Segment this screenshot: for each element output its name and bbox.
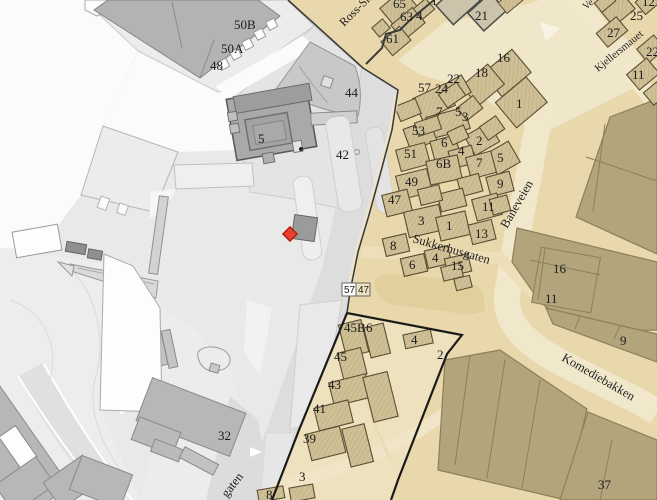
svg-text:2: 2 xyxy=(476,133,483,148)
svg-text:22: 22 xyxy=(646,44,657,59)
svg-text:5: 5 xyxy=(497,150,504,165)
svg-text:61: 61 xyxy=(386,31,399,46)
svg-text:57: 57 xyxy=(418,80,432,95)
svg-text:1: 1 xyxy=(446,218,453,233)
svg-text:45B: 45B xyxy=(344,320,366,335)
svg-text:3: 3 xyxy=(299,469,306,484)
svg-text:9: 9 xyxy=(497,176,504,191)
svg-text:11: 11 xyxy=(482,199,495,214)
svg-text:44: 44 xyxy=(345,85,359,100)
svg-text:4: 4 xyxy=(458,143,465,158)
svg-text:15: 15 xyxy=(451,258,464,273)
svg-text:43: 43 xyxy=(328,377,341,392)
svg-text:22: 22 xyxy=(447,71,460,86)
svg-text:47: 47 xyxy=(358,285,370,296)
svg-text:48: 48 xyxy=(210,58,223,73)
svg-text:16: 16 xyxy=(497,50,511,65)
svg-text:5: 5 xyxy=(258,131,265,146)
svg-text:6: 6 xyxy=(441,135,448,150)
svg-text:12: 12 xyxy=(642,0,655,9)
svg-text:18: 18 xyxy=(475,65,488,80)
svg-text:6B: 6B xyxy=(436,156,452,171)
svg-text:32: 32 xyxy=(218,428,231,443)
svg-text:6: 6 xyxy=(366,320,373,335)
svg-text:13: 13 xyxy=(475,226,488,241)
svg-text:41: 41 xyxy=(313,401,326,416)
svg-text:45: 45 xyxy=(334,349,347,364)
svg-text:57: 57 xyxy=(344,285,356,296)
svg-text:8: 8 xyxy=(266,487,273,500)
svg-text:47: 47 xyxy=(388,192,402,207)
svg-text:21: 21 xyxy=(475,8,488,23)
svg-text:63: 63 xyxy=(400,9,413,24)
svg-text:1: 1 xyxy=(516,96,523,111)
svg-text:5: 5 xyxy=(455,104,462,119)
svg-text:16: 16 xyxy=(553,261,567,276)
svg-text:50B: 50B xyxy=(234,17,256,32)
svg-text:37: 37 xyxy=(598,477,612,492)
svg-text:53: 53 xyxy=(412,123,425,138)
svg-text:2: 2 xyxy=(437,347,444,362)
svg-text:42: 42 xyxy=(336,147,349,162)
svg-text:4: 4 xyxy=(411,332,418,347)
svg-text:25: 25 xyxy=(630,8,643,23)
svg-text:51: 51 xyxy=(404,146,417,161)
svg-text:6: 6 xyxy=(409,257,416,272)
svg-text:4: 4 xyxy=(432,250,439,265)
svg-text:1: 1 xyxy=(431,0,438,8)
svg-text:27: 27 xyxy=(607,25,621,40)
svg-text:50A: 50A xyxy=(221,41,244,56)
svg-text:7: 7 xyxy=(436,104,443,119)
svg-text:4: 4 xyxy=(416,8,423,23)
svg-text:24: 24 xyxy=(435,81,449,96)
svg-text:49: 49 xyxy=(405,174,418,189)
svg-text:3: 3 xyxy=(418,213,425,228)
svg-text:11: 11 xyxy=(632,67,645,82)
svg-text:7: 7 xyxy=(476,155,483,170)
svg-text:3: 3 xyxy=(462,109,469,124)
svg-text:39: 39 xyxy=(303,431,316,446)
svg-text:11: 11 xyxy=(545,291,558,306)
svg-text:9: 9 xyxy=(620,333,627,348)
svg-text:8: 8 xyxy=(390,238,397,253)
